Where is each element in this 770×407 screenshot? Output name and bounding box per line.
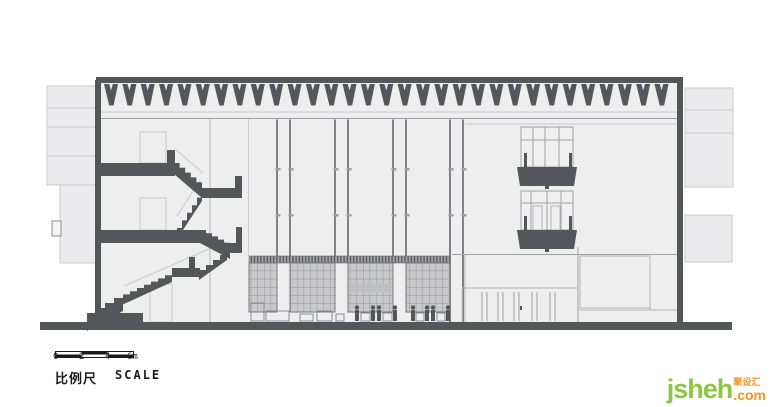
scale-tick-0: 0 bbox=[53, 352, 58, 362]
roof-slab bbox=[96, 77, 683, 83]
scale-bar: 0 2 4 6m 比例尺 SCALE bbox=[55, 351, 175, 387]
watermark-cn-tag: 聚设汇 bbox=[733, 378, 760, 387]
left-wall bbox=[95, 80, 101, 322]
scale-tick-labels: 0 2 4 6m bbox=[55, 351, 175, 363]
drawing-canvas: 0 2 4 6m 比例尺 SCALE jsheh 聚设汇 .com bbox=[0, 0, 770, 407]
right-wall bbox=[677, 80, 683, 322]
scale-caption: 比例尺 SCALE bbox=[55, 368, 175, 387]
watermark-tld: .com bbox=[733, 388, 766, 402]
watermark-logo: jsheh 聚设汇 .com bbox=[667, 376, 766, 403]
ground-slab bbox=[40, 322, 732, 330]
scale-label-cn: 比例尺 bbox=[55, 368, 97, 387]
scale-tick-6m: 6m bbox=[127, 352, 138, 362]
scale-label-en: SCALE bbox=[115, 368, 161, 387]
scale-tick-2: 2 bbox=[79, 352, 84, 362]
scale-tick-4: 4 bbox=[105, 352, 110, 362]
watermark-name: jsheh bbox=[667, 376, 733, 403]
section-drawing bbox=[0, 0, 770, 407]
